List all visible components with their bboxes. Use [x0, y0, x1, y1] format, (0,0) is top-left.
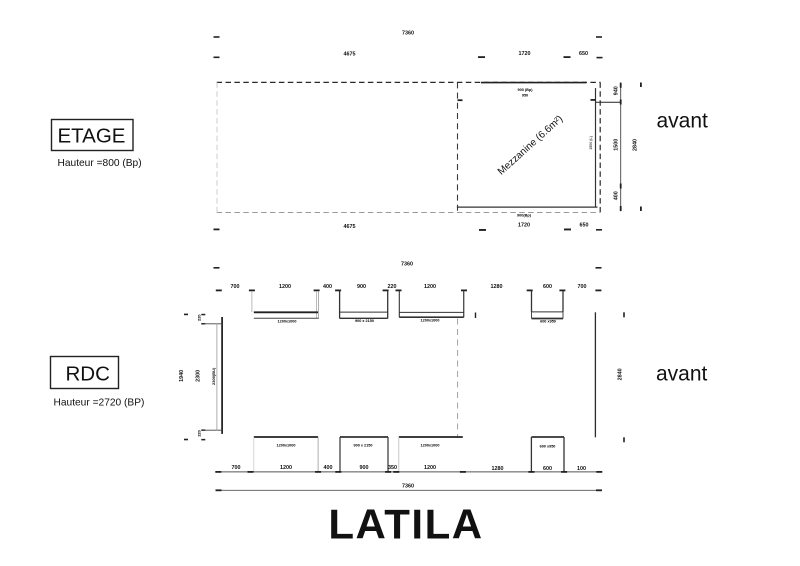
svg-text:600: 600 [543, 284, 552, 290]
svg-text:600 x950: 600 x950 [540, 319, 556, 323]
svg-text:1200: 1200 [280, 465, 292, 471]
svg-text:1200: 1200 [424, 284, 436, 290]
svg-text:4675: 4675 [344, 52, 356, 58]
svg-text:1940: 1940 [179, 370, 185, 382]
svg-text:900: 900 [357, 284, 366, 290]
svg-text:7360: 7360 [401, 261, 413, 267]
svg-text:1720: 1720 [518, 223, 530, 229]
svg-text:Hauteur =800 (Bp): Hauteur =800 (Bp) [58, 158, 142, 169]
svg-text:1200: 1200 [279, 284, 291, 290]
svg-text:1200x1000: 1200x1000 [420, 444, 439, 448]
svg-text:ETAGE: ETAGE [58, 125, 126, 148]
svg-text:950: 950 [522, 94, 528, 98]
svg-text:400: 400 [323, 284, 332, 290]
svg-text:7360: 7360 [402, 31, 414, 37]
svg-text:1200x1000: 1200x1000 [277, 319, 296, 323]
svg-text:220: 220 [196, 430, 201, 437]
svg-text:600: 600 [543, 466, 552, 472]
svg-text:600 x950: 600 x950 [540, 445, 556, 449]
svg-text:700: 700 [231, 284, 240, 290]
svg-text:900 x 2150: 900 x 2150 [355, 319, 374, 323]
svg-text:LATILA: LATILA [328, 501, 483, 548]
svg-text:Hauteur =2720 (BP): Hauteur =2720 (BP) [54, 397, 145, 408]
svg-text:4675: 4675 [344, 224, 356, 230]
svg-text:1280: 1280 [491, 284, 503, 290]
svg-text:1280: 1280 [492, 466, 504, 472]
svg-text:700: 700 [578, 284, 587, 290]
svg-text:400: 400 [613, 191, 619, 200]
svg-text:650: 650 [580, 223, 589, 229]
svg-text:350: 350 [388, 465, 397, 471]
svg-text:900 x 2150: 900 x 2150 [353, 444, 372, 448]
svg-text:avant: avant [656, 363, 708, 386]
svg-text:1720: 1720 [519, 51, 531, 57]
svg-text:2840: 2840 [618, 368, 624, 380]
svg-text:2300: 2300 [196, 370, 202, 382]
svg-text:100: 100 [577, 466, 586, 472]
svg-text:400: 400 [324, 465, 333, 471]
svg-text:900: 900 [360, 465, 369, 471]
svg-text:avant: avant [657, 109, 709, 132]
svg-text:900(Bp): 900(Bp) [517, 213, 532, 217]
svg-text:1500: 1500 [613, 139, 619, 151]
svg-text:1200x1000: 1200x1000 [276, 444, 295, 448]
svg-text:1200: 1200 [424, 465, 436, 471]
svg-text:220: 220 [388, 284, 397, 290]
svg-text:7360: 7360 [402, 484, 414, 490]
svg-text:220: 220 [196, 314, 201, 321]
svg-text:700: 700 [232, 465, 241, 471]
svg-text:900 (Bp): 900 (Bp) [518, 88, 534, 92]
svg-text:2300(BU): 2300(BU) [211, 367, 216, 385]
svg-text:1200x1000: 1200x1000 [420, 319, 439, 323]
svg-text:650: 650 [579, 51, 588, 57]
svg-text:2840: 2840 [633, 139, 639, 151]
svg-text:RDC: RDC [66, 362, 111, 385]
svg-text:1500 (L): 1500 (L) [589, 135, 593, 149]
svg-text:940: 940 [613, 86, 619, 95]
